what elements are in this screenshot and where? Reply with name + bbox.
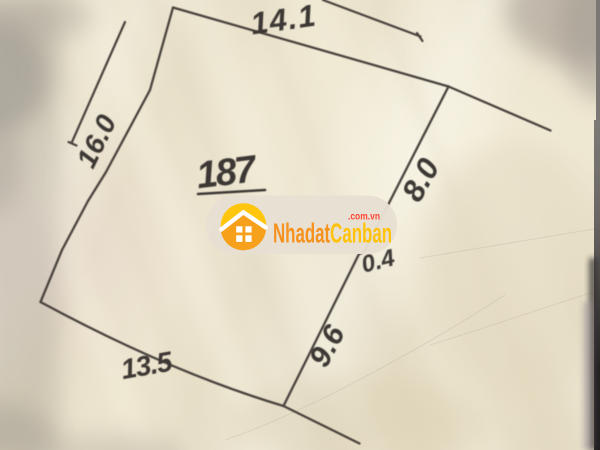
svg-text:13.5: 13.5 xyxy=(119,346,176,386)
svg-text:.com.vn: .com.vn xyxy=(348,211,380,223)
